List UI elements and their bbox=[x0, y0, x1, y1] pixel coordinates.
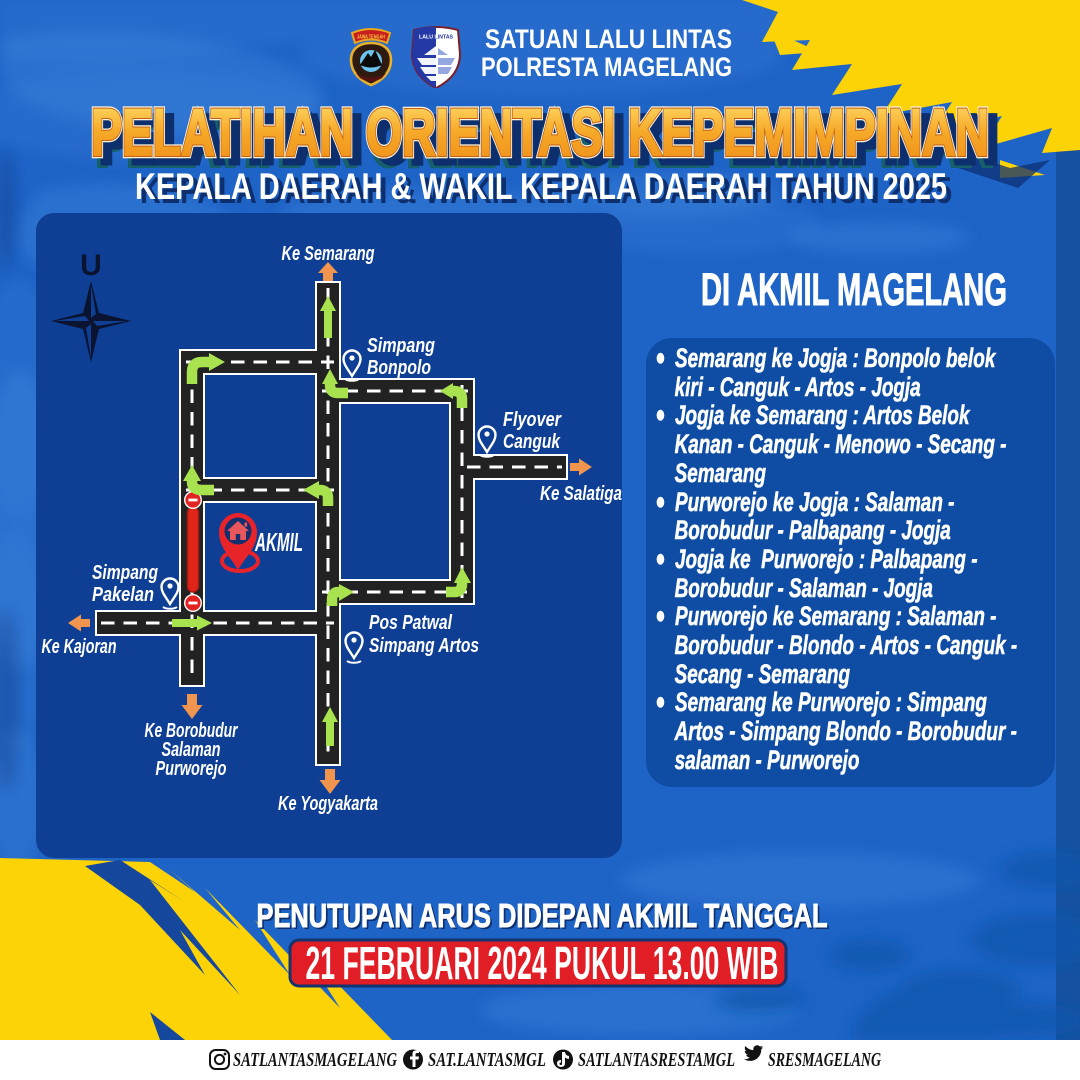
svg-text:KEPALA DAERAH & WAKIL KEPALA D: KEPALA DAERAH & WAKIL KEPALA DAERAH TAHU… bbox=[135, 166, 947, 207]
svg-text:Simpang: Simpang bbox=[367, 335, 435, 357]
svg-text:Bonpolo: Bonpolo bbox=[367, 357, 431, 379]
svg-text:SATUAN LALU LINTAS: SATUAN LALU LINTAS bbox=[485, 24, 732, 54]
svg-text:Ke Semarang: Ke Semarang bbox=[282, 243, 375, 265]
svg-text:Ke Kajoran: Ke Kajoran bbox=[42, 636, 117, 658]
svg-text:DI AKMIL MAGELANG: DI AKMIL MAGELANG bbox=[701, 264, 1007, 315]
svg-text:SRESMAGELANG: SRESMAGELANG bbox=[768, 1049, 881, 1071]
svg-text:PELATIHAN ORIENTASI KEPEMIMPIN: PELATIHAN ORIENTASI KEPEMIMPINAN bbox=[91, 95, 989, 169]
svg-text:PENUTUPAN ARUS DIDEPAN AKMIL T: PENUTUPAN ARUS DIDEPAN AKMIL TANGGAL bbox=[257, 897, 828, 934]
svg-text:21 FEBRUARI 2024 PUKUL 13.00 W: 21 FEBRUARI 2024 PUKUL 13.00 WIB bbox=[306, 937, 779, 989]
svg-text:JAWA TENGAH: JAWA TENGAH bbox=[357, 35, 385, 41]
svg-text:Purworejo: Purworejo bbox=[156, 758, 227, 780]
svg-text:POLRESTA MAGELANG: POLRESTA MAGELANG bbox=[481, 52, 732, 82]
svg-text:Simpang Artos: Simpang Artos bbox=[369, 635, 479, 657]
svg-text:Pos Patwal: Pos Patwal bbox=[369, 612, 452, 634]
svg-text:Ke Yogyakarta: Ke Yogyakarta bbox=[278, 793, 378, 815]
svg-text:AKMIL: AKMIL bbox=[254, 527, 303, 557]
svg-text:Ke Salatiga: Ke Salatiga bbox=[540, 483, 622, 505]
svg-text:SAT.LANTASMGL: SAT.LANTASMGL bbox=[428, 1049, 546, 1071]
svg-text:U: U bbox=[80, 249, 102, 282]
svg-text:Flyover: Flyover bbox=[503, 409, 562, 431]
svg-text:Pakelan: Pakelan bbox=[92, 584, 154, 606]
svg-text:Simpang: Simpang bbox=[92, 562, 158, 584]
svg-text:SATLANTASMAGELANG: SATLANTASMAGELANG bbox=[233, 1049, 397, 1071]
svg-text:SATLANTASRESTAMGL: SATLANTASRESTAMGL bbox=[578, 1049, 735, 1071]
svg-text:Canguk: Canguk bbox=[503, 431, 561, 453]
